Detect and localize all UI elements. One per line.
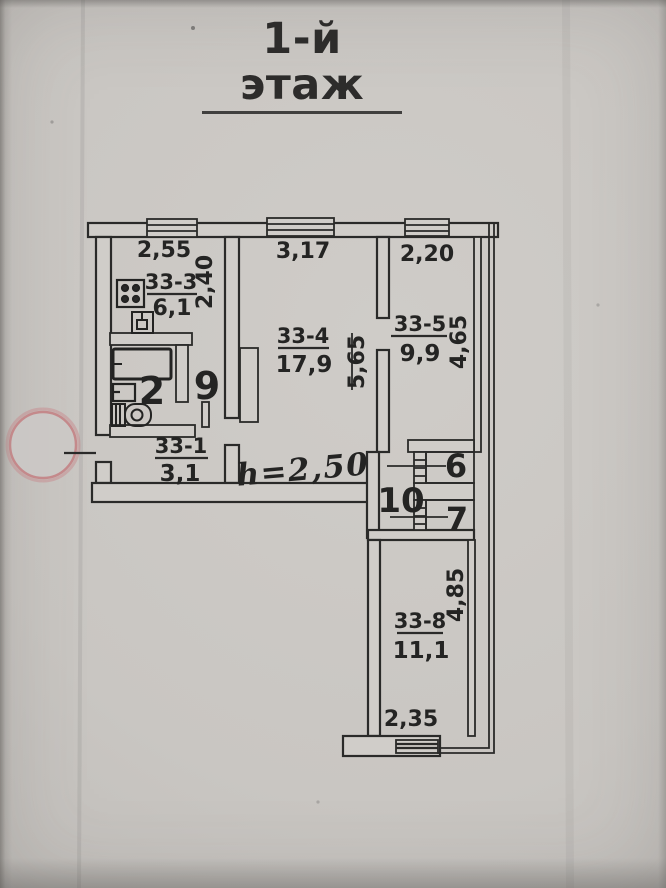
- window-icon: [267, 218, 334, 236]
- room-area-label: 6,1: [153, 296, 192, 321]
- round-stamp-icon: [7, 409, 79, 481]
- walls: [88, 223, 498, 756]
- space-number-label: 10: [377, 481, 424, 521]
- vent-shaft: [240, 348, 258, 422]
- wall-left-upper: [96, 237, 111, 435]
- dimension-label: 4,85: [444, 568, 469, 622]
- wall-b-upper: [377, 237, 389, 318]
- wall-a-upper: [225, 237, 239, 418]
- room-number-label: 33-8: [394, 609, 447, 633]
- room-area-label: 3,1: [160, 461, 201, 487]
- space-number-label: 6: [445, 447, 467, 485]
- room-area-label: 11,1: [393, 638, 450, 664]
- dimension-label: 2,20: [400, 242, 454, 267]
- dimension-label: 5,65: [345, 335, 370, 389]
- space-number-label: 2: [139, 369, 165, 413]
- dimension-label: 2,35: [384, 707, 438, 732]
- paper-crease-lines: [50, 0, 599, 888]
- room-area-label: 9,9: [400, 341, 441, 367]
- window-icon: [405, 219, 449, 236]
- dimension-label: 3,17: [276, 239, 330, 264]
- wall-left-lower: [96, 462, 111, 483]
- wall-bath-divider: [176, 345, 188, 402]
- wall-kitchen-bottom: [110, 333, 192, 345]
- wall-b-lower: [377, 350, 389, 452]
- wall-bedroom-right: [474, 237, 481, 452]
- room-number-label: 33-5: [394, 312, 447, 336]
- room-number-label: 33-4: [277, 324, 330, 348]
- space-number-label: 9: [194, 364, 220, 408]
- closet-door-icon: [414, 452, 426, 483]
- kitchen-sink-icon: [132, 312, 153, 333]
- floor-plan-drawing: 2,55 3,17 2,20 2,40 5,65 4,65 4,85 2,35 …: [0, 0, 666, 888]
- dimension-label: 2,55: [137, 238, 191, 263]
- photo-edge-shadow-top: [0, 0, 666, 8]
- photo-edge-shadow-right: [658, 0, 666, 888]
- space-number-label: 7: [446, 500, 468, 538]
- wall-room8-right: [468, 540, 475, 736]
- wash-sink-icon: [113, 384, 135, 401]
- wall-corridor-bar: [92, 483, 377, 502]
- labels: 2,55 3,17 2,20 2,40 5,65 4,65 4,85 2,35 …: [137, 238, 472, 732]
- stove-icon: [117, 280, 144, 307]
- window-icon: [396, 740, 438, 753]
- wall-room8-left: [368, 540, 380, 736]
- room-area-label: 17,9: [276, 352, 333, 378]
- photo-edge-shadow-left: [0, 0, 12, 888]
- room-number-label: 33-3: [145, 270, 198, 294]
- floor-plan-photo: 1-й этаж: [0, 0, 666, 888]
- photo-edge-shadow-bottom: [0, 858, 666, 888]
- dimension-label: 4,65: [447, 315, 472, 369]
- room-number-label: 33-1: [155, 434, 208, 458]
- window-icon: [147, 219, 197, 237]
